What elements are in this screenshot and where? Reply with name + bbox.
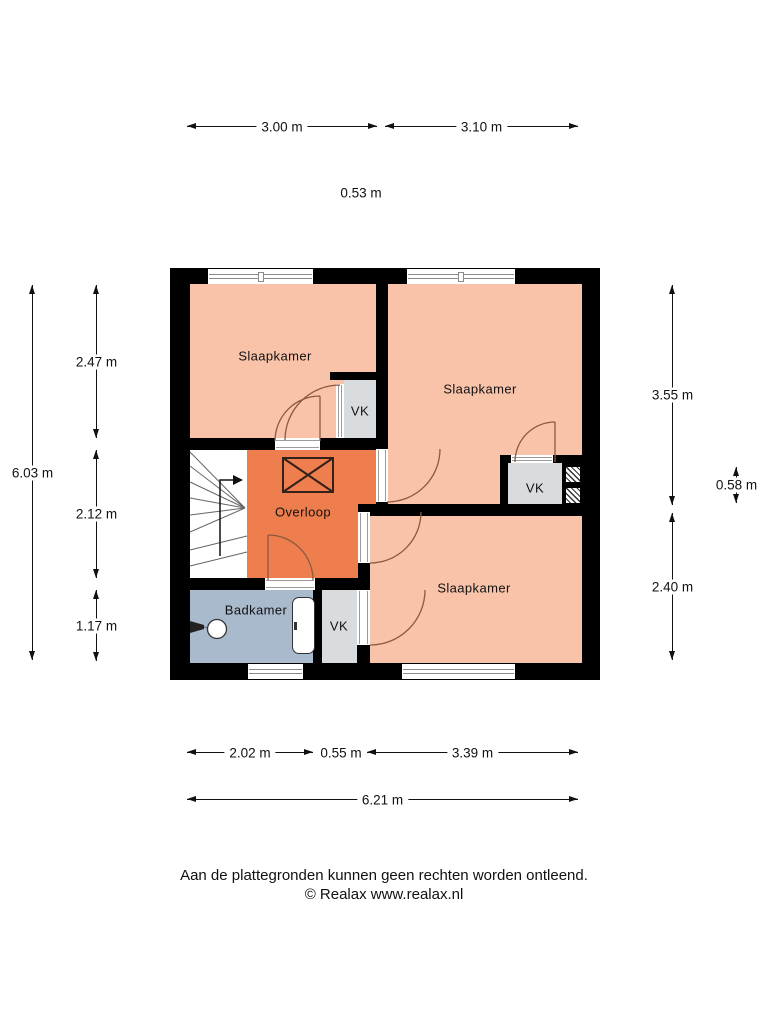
room-label-closet-bottom: VK bbox=[330, 619, 348, 634]
dim-bottom-total: 6.21 m bbox=[187, 793, 578, 806]
room-label-bedroom-top-left: Slaapkamer bbox=[238, 349, 311, 364]
room-label-landing: Overloop bbox=[275, 505, 331, 520]
stairs-icon bbox=[190, 452, 247, 566]
dim-bottom-1: 2.02 m bbox=[187, 746, 313, 759]
arrow-right-icon bbox=[569, 796, 578, 802]
arrow-left-icon bbox=[187, 796, 196, 802]
arrow-up-icon bbox=[733, 467, 739, 476]
dim-label: 3.55 m bbox=[647, 388, 698, 403]
footer-copyright: © Realax www.realax.nl bbox=[0, 885, 768, 904]
dim-left-total: 6.03 m bbox=[26, 285, 39, 660]
arrow-up-icon bbox=[29, 285, 35, 294]
stairs-direction-arrow bbox=[233, 475, 243, 485]
dim-label: 3.00 m bbox=[256, 119, 307, 134]
arrow-up-icon bbox=[93, 590, 99, 599]
dim-label: 6.21 m bbox=[357, 792, 408, 807]
arrow-left-icon bbox=[385, 123, 394, 129]
arrow-up-icon bbox=[669, 513, 675, 522]
dim-bottom-offset: 0.55 m bbox=[320, 746, 361, 761]
room-label-bedroom-top-right: Slaapkamer bbox=[443, 382, 516, 397]
dim-right-1: 3.55 m bbox=[666, 285, 679, 505]
door-arc-bathroom bbox=[268, 535, 313, 580]
door-arc-bedroom3-upper bbox=[370, 512, 421, 563]
dim-left-3: 1.17 m bbox=[90, 590, 103, 661]
arrow-down-icon bbox=[93, 652, 99, 661]
dim-bottom-2: 3.39 m bbox=[367, 746, 578, 759]
arrow-up-icon bbox=[669, 285, 675, 294]
arrow-left-icon bbox=[187, 749, 196, 755]
dim-top-offset: 0.53 m bbox=[340, 186, 381, 201]
plan-linework bbox=[170, 268, 600, 680]
arrow-down-icon bbox=[93, 569, 99, 578]
room-label-bathroom: Badkamer bbox=[225, 603, 287, 618]
dim-label: 2.02 m bbox=[224, 745, 275, 760]
dim-label: 3.39 m bbox=[447, 745, 498, 760]
arrow-up-icon bbox=[93, 450, 99, 459]
arrow-down-icon bbox=[733, 494, 739, 503]
dim-label: 2.47 m bbox=[71, 354, 122, 369]
arrow-left-icon bbox=[367, 749, 376, 755]
dim-label: 0.58 m bbox=[711, 478, 762, 493]
skylight-icon bbox=[283, 458, 333, 492]
room-label-closet-right: VK bbox=[526, 481, 544, 496]
door-arc-closet-bottom bbox=[370, 590, 425, 645]
arrow-right-icon bbox=[569, 749, 578, 755]
arrow-right-icon bbox=[569, 123, 578, 129]
arrow-down-icon bbox=[669, 651, 675, 660]
door-arc-bedroom2 bbox=[387, 449, 440, 502]
dim-top-right: 3.10 m bbox=[385, 120, 578, 133]
arrow-left-icon bbox=[187, 123, 196, 129]
door-arc-bedroom1 bbox=[275, 396, 320, 441]
dim-left-1: 2.47 m bbox=[90, 285, 103, 438]
dim-right-offset: 0.58 m bbox=[730, 467, 743, 503]
dim-right-2: 2.40 m bbox=[666, 513, 679, 660]
dim-left-2: 2.12 m bbox=[90, 450, 103, 578]
arrow-down-icon bbox=[29, 651, 35, 660]
arrow-up-icon bbox=[93, 285, 99, 294]
floorplan-page: 3.00 m 3.10 m 0.53 m 6.03 m 2.47 m 2.12 … bbox=[0, 0, 768, 1024]
dim-label: 3.10 m bbox=[456, 119, 507, 134]
dim-label: 2.12 m bbox=[71, 507, 122, 522]
dim-label: 2.40 m bbox=[647, 579, 698, 594]
arrow-right-icon bbox=[368, 123, 377, 129]
dim-top-left: 3.00 m bbox=[187, 120, 377, 133]
arrow-down-icon bbox=[93, 429, 99, 438]
sink-icon bbox=[190, 620, 227, 639]
room-label-closet-top: VK bbox=[351, 404, 369, 419]
door-arc-closet-right bbox=[515, 422, 555, 462]
dim-label: 6.03 m bbox=[7, 465, 58, 480]
dim-label: 1.17 m bbox=[71, 618, 122, 633]
footer: Aan de plattegronden kunnen geen rechten… bbox=[0, 866, 768, 904]
room-label-bedroom-bottom: Slaapkamer bbox=[437, 581, 510, 596]
arrow-down-icon bbox=[669, 496, 675, 505]
footer-disclaimer: Aan de plattegronden kunnen geen rechten… bbox=[0, 866, 768, 885]
arrow-right-icon bbox=[304, 749, 313, 755]
door-arc-closet-top bbox=[285, 385, 340, 440]
